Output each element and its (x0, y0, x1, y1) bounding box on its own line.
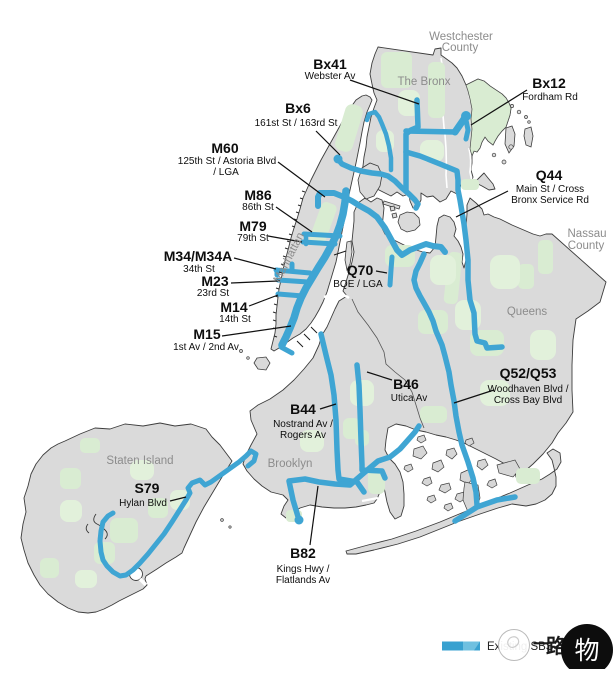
svg-text:86th St: 86th St (242, 202, 274, 213)
svg-text:B46: B46 (393, 376, 419, 392)
svg-text:Bx41: Bx41 (313, 56, 347, 72)
svg-text:Queens: Queens (507, 306, 548, 318)
svg-text:Q70: Q70 (347, 262, 374, 278)
svg-text:M86: M86 (244, 187, 271, 203)
svg-text:B44: B44 (290, 401, 316, 417)
svg-text:14th St: 14th St (219, 314, 251, 325)
svg-text:Q44: Q44 (536, 167, 563, 183)
svg-text:M79: M79 (239, 218, 266, 234)
svg-text:Fordham Rd: Fordham Rd (522, 92, 578, 103)
svg-text:Rogers Av: Rogers Av (280, 430, 326, 441)
svg-text:Hylan Blvd: Hylan Blvd (119, 498, 167, 509)
svg-text:Woodhaven Blvd /: Woodhaven Blvd / (488, 384, 569, 395)
svg-text:BQE / LGA: BQE / LGA (333, 279, 383, 290)
svg-text:125th St / Astoria Blvd: 125th St / Astoria Blvd (178, 156, 276, 167)
svg-text:County: County (568, 240, 605, 252)
svg-text:Brooklyn: Brooklyn (268, 458, 313, 470)
svg-text:Nostrand Av /: Nostrand Av / (273, 419, 333, 430)
svg-text:M14: M14 (220, 299, 247, 315)
svg-text:S79: S79 (135, 480, 160, 496)
svg-text:County: County (442, 42, 479, 54)
svg-text:Staten Island: Staten Island (106, 455, 173, 467)
svg-text:Bx12: Bx12 (532, 75, 566, 91)
svg-text:M60: M60 (211, 140, 238, 156)
svg-text:M23: M23 (201, 273, 228, 289)
svg-text:M34/M34A: M34/M34A (164, 248, 232, 264)
svg-text:Webster Av: Webster Av (305, 71, 356, 82)
svg-text:23rd St: 23rd St (197, 288, 229, 299)
svg-text:Utica Av: Utica Av (391, 393, 428, 404)
svg-text:Q52/Q53: Q52/Q53 (500, 365, 557, 381)
svg-text:Cross Bay Blvd: Cross Bay Blvd (494, 395, 562, 406)
svg-text:物: 物 (574, 637, 599, 665)
svg-text:M15: M15 (193, 326, 220, 342)
svg-text:/ LGA: / LGA (213, 167, 239, 178)
svg-text:Bronx Service Rd: Bronx Service Rd (511, 195, 589, 206)
svg-text:Bx6: Bx6 (285, 100, 311, 116)
svg-text:Nassau: Nassau (568, 228, 607, 240)
svg-text:161st St / 163rd St: 161st St / 163rd St (255, 118, 338, 129)
svg-text:1st Av / 2nd Av: 1st Av / 2nd Av (173, 342, 239, 353)
svg-text:Kings Hwy /: Kings Hwy / (277, 564, 330, 575)
svg-text:Main St / Cross: Main St / Cross (516, 184, 584, 195)
svg-text:B82: B82 (290, 545, 316, 561)
svg-text:79th St: 79th St (237, 233, 269, 244)
svg-text:The Bronx: The Bronx (397, 76, 450, 88)
svg-text:Flatlands Av: Flatlands Av (276, 575, 330, 586)
